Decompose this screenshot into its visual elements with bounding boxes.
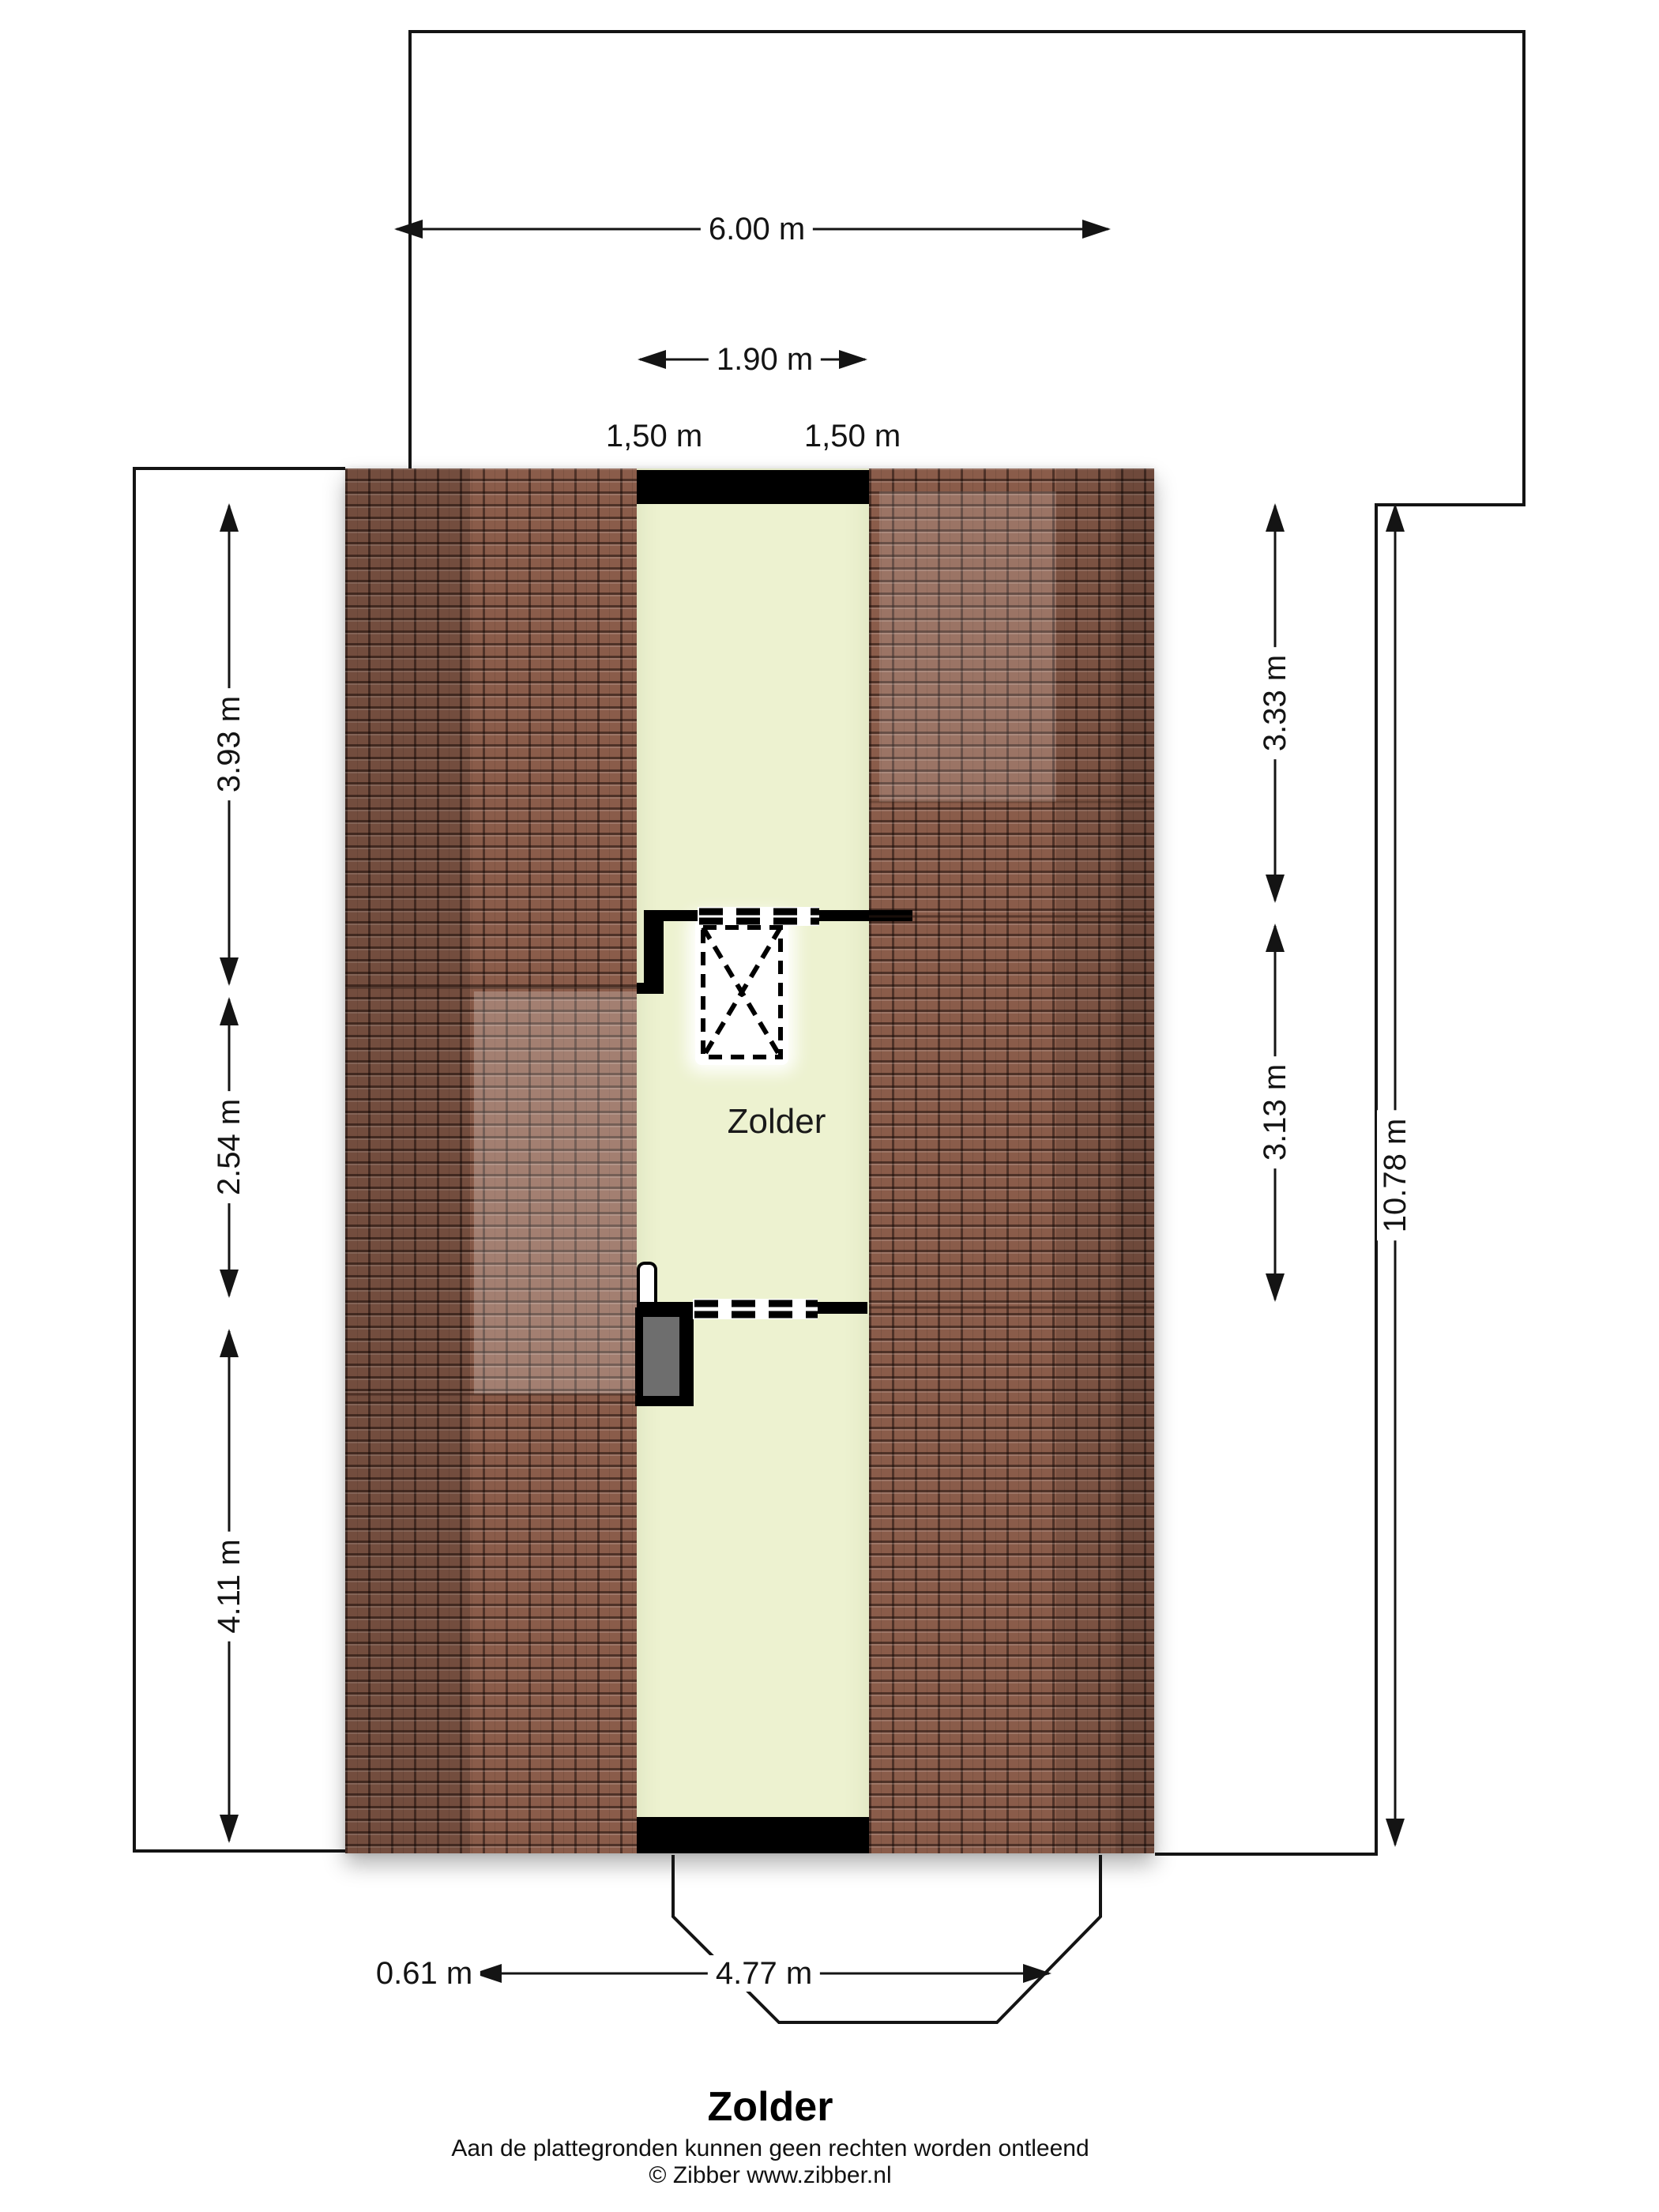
disclaimer-text: Aan de plattegronden kunnen geen rechten… <box>451 2137 1089 2161</box>
dim-right-middle: 3.13 m <box>1257 1056 1293 1168</box>
dimension-lines <box>229 229 1395 1973</box>
dim-right-top: 3.33 m <box>1257 647 1293 759</box>
room-name-label: Zolder <box>728 1104 826 1139</box>
floorplan-page: 6.00 m 1.90 m 1,50 m 1,50 m 3.93 m 2.54 … <box>0 0 1659 2212</box>
dim-bottom-width: 4.77 m <box>708 1955 820 1992</box>
dim-right-total: 10.78 m <box>1377 1111 1413 1241</box>
dim-top-width: 6.00 m <box>701 211 813 247</box>
dim-segment-left: 1,50 m <box>598 418 710 454</box>
dim-bottom-offset: 0.61 m <box>368 1955 480 1992</box>
dim-left-middle: 2.54 m <box>211 1091 247 1203</box>
dimension-lines-layer <box>0 0 1659 2212</box>
building-outline <box>134 32 1524 2022</box>
copyright-text: © Zibber www.zibber.nl <box>649 2164 891 2188</box>
dim-left-bottom: 4.11 m <box>211 1531 247 1641</box>
dim-inner-width: 1.90 m <box>709 341 821 378</box>
dim-segment-right: 1,50 m <box>796 418 908 454</box>
dim-left-top: 3.93 m <box>211 688 247 800</box>
stairs-icon <box>703 927 781 1057</box>
page-title: Zolder <box>708 2086 833 2127</box>
